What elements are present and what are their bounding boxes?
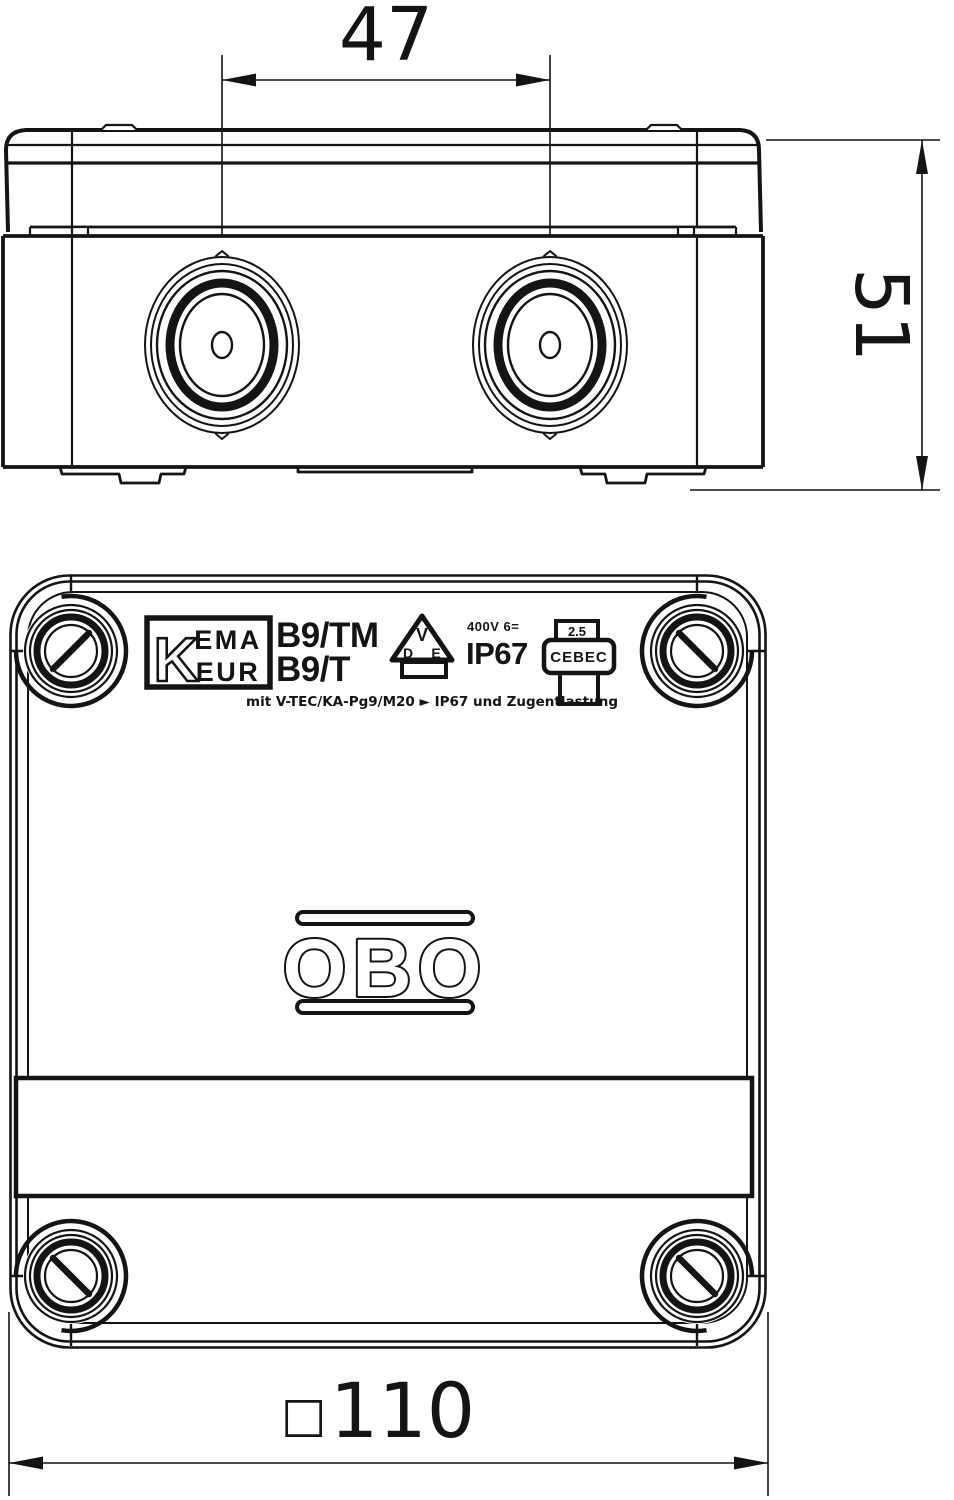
dim-bottom-label: 110 [330, 1366, 475, 1455]
cebec-logo: 2.5 CEBEC [544, 621, 614, 704]
lid-screw-bottom-left [16, 1221, 126, 1331]
foot-left [60, 467, 186, 483]
obo-brand-text: OBO [283, 923, 488, 1014]
pilot-hole-right [540, 332, 560, 358]
vde-e-letter: E [431, 645, 440, 661]
box-body [3, 236, 763, 483]
obo-logo: OBO [283, 912, 488, 1014]
lid-tab-left [101, 125, 137, 130]
kema-k-letter: K [154, 626, 199, 695]
knockout-left [145, 251, 299, 439]
terminal-band [16, 1078, 752, 1196]
cebec-name-label: CEBEC [550, 649, 608, 666]
vde-d-letter: D [403, 645, 413, 661]
ip-rating-label: IP67 [466, 636, 528, 671]
lid-screw-top-right [642, 596, 752, 706]
cebec-value-label: 2.5 [568, 624, 586, 639]
technical-drawing-page: 47 51 [0, 0, 954, 1500]
pilot-hole-left [212, 332, 232, 358]
dim-height-label: 51 [838, 268, 924, 362]
vde-v-letter: V [416, 625, 428, 645]
top-view: 47 51 [3, 0, 940, 490]
lid-outline [5, 125, 761, 232]
drawing-canvas: 47 51 [0, 0, 954, 1500]
voltage-rating-label: 400V 6= [467, 619, 519, 634]
lid-screw-bottom-right [642, 1221, 752, 1331]
lid-tab-right [646, 125, 682, 130]
lid-screw-top-left [16, 596, 126, 706]
gland-note-label: mit V-TEC/KA-Pg9/M20 ► IP67 und Zugentla… [246, 694, 618, 710]
kema-keur-logo: K EMA EUR [147, 618, 270, 695]
kema-row1-label: EMA [194, 625, 262, 655]
model-label-line2: B9/T [276, 650, 350, 689]
knockout-right [473, 251, 627, 439]
kema-row2-label: EUR [196, 657, 261, 687]
square-symbol: □ [281, 1387, 326, 1443]
foot-right [580, 467, 706, 483]
front-view: K EMA EUR B9/TM B9/T V D E 400V 6= IP67 … [9, 576, 768, 1497]
dimension-width-110: □ 110 [9, 1312, 768, 1496]
dim-width-label: 47 [339, 0, 433, 78]
vde-logo: V D E [392, 616, 452, 677]
